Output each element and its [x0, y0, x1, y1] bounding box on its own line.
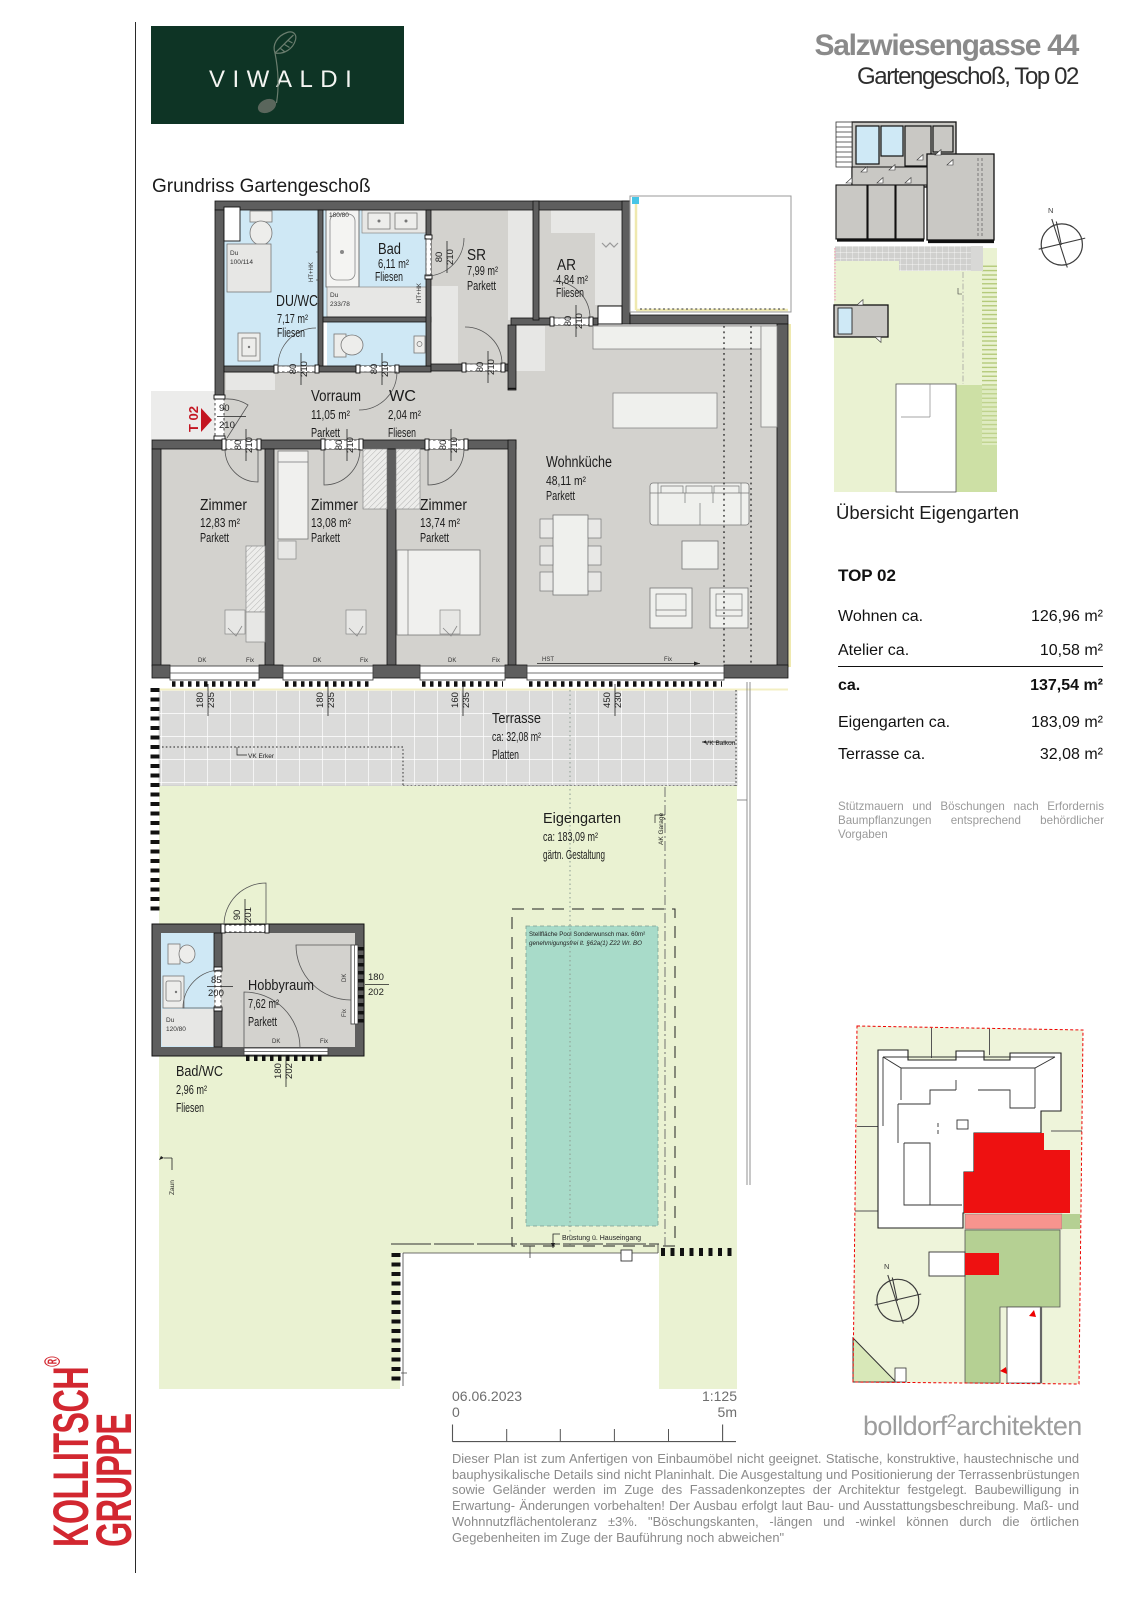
svg-text:4,84 m²: 4,84 m² [556, 273, 588, 287]
svg-text:DK: DK [448, 658, 456, 664]
svg-text:80: 80 [475, 362, 486, 373]
svg-text:Hobbyraum: Hobbyraum [248, 977, 314, 994]
svg-text:Bad: Bad [378, 241, 401, 258]
svg-text:VK Balkon: VK Balkon [705, 740, 736, 747]
svg-text:Zimmer: Zimmer [200, 497, 247, 514]
svg-text:Fix: Fix [342, 1009, 348, 1017]
svg-text:SR: SR [467, 247, 486, 264]
svg-text:AR: AR [557, 257, 576, 274]
svg-text:ca: 183,09 m²: ca: 183,09 m² [543, 830, 598, 844]
svg-text:Zimmer: Zimmer [420, 497, 467, 514]
svg-text:N: N [884, 1262, 889, 1271]
svg-text:N: N [1048, 206, 1053, 215]
svg-text:7,62 m²: 7,62 m² [248, 997, 279, 1011]
svg-text:180: 180 [195, 692, 206, 708]
svg-text:7,17 m²: 7,17 m² [277, 312, 308, 326]
svg-text:Fliesen: Fliesen [277, 326, 305, 340]
svg-text:2,96 m²: 2,96 m² [176, 1083, 207, 1097]
svg-text:13,08 m²: 13,08 m² [311, 516, 351, 530]
svg-text:120/80: 120/80 [166, 1026, 186, 1033]
svg-text:13,74 m²: 13,74 m² [420, 516, 460, 530]
svg-text:90: 90 [219, 403, 230, 414]
svg-text:12,83 m²: 12,83 m² [200, 516, 240, 530]
svg-text:Fix: Fix [360, 658, 368, 664]
svg-text:7,99 m²: 7,99 m² [467, 264, 498, 278]
svg-text:80: 80 [563, 316, 574, 327]
svg-text:80: 80 [334, 440, 345, 451]
svg-text:Eigengarten: Eigengarten [543, 810, 621, 827]
svg-text:Stellfläche Pool Sonderwunsch: Stellfläche Pool Sonderwunsch max. 60m² [529, 931, 645, 938]
svg-text:Wohnküche: Wohnküche [546, 454, 612, 471]
svg-text:Fix: Fix [320, 1039, 328, 1045]
svg-text:160: 160 [450, 692, 461, 708]
svg-text:HT+HK: HT+HK [417, 283, 423, 303]
svg-text:Parkett: Parkett [420, 531, 449, 545]
svg-text:ca: 32,08 m²: ca: 32,08 m² [492, 730, 541, 744]
svg-text:Vorraum: Vorraum [311, 388, 361, 405]
svg-text:80: 80 [369, 364, 380, 375]
svg-text:Fix: Fix [664, 657, 672, 663]
svg-text:233/78: 233/78 [330, 301, 350, 308]
svg-text:80: 80 [434, 252, 445, 263]
svg-text:Parkett: Parkett [311, 426, 340, 440]
svg-text:HT+HK: HT+HK [309, 262, 315, 282]
svg-text:Zimmer: Zimmer [311, 497, 358, 514]
svg-text:11,05 m²: 11,05 m² [311, 408, 350, 422]
svg-text:202: 202 [368, 987, 384, 998]
svg-text:Du: Du [166, 1017, 175, 1024]
svg-text:Fliesen: Fliesen [388, 426, 416, 440]
svg-text:VK Erker: VK Erker [248, 753, 275, 760]
svg-text:Fix: Fix [492, 658, 500, 664]
svg-text:200: 200 [208, 988, 224, 999]
svg-text:gärtn. Gestaltung: gärtn. Gestaltung [543, 848, 605, 862]
svg-text:DU/WC: DU/WC [276, 293, 318, 310]
svg-text:100/114: 100/114 [230, 259, 253, 266]
svg-text:Fliesen: Fliesen [176, 1101, 204, 1115]
svg-text:180: 180 [273, 1063, 284, 1079]
svg-text:DK: DK [198, 658, 206, 664]
svg-text:DK: DK [342, 974, 348, 982]
svg-text:Du: Du [330, 292, 339, 299]
svg-text:450: 450 [602, 692, 613, 708]
svg-text:DK: DK [272, 1039, 280, 1045]
svg-text:Parkett: Parkett [248, 1015, 277, 1029]
svg-text:48,11 m²: 48,11 m² [546, 474, 586, 488]
svg-text:AK Garage: AK Garage [658, 812, 665, 845]
svg-text:genehmigungsfrei lt. §62a(1) Z: genehmigungsfrei lt. §62a(1) Z22 Wr. BO [529, 940, 642, 947]
svg-text:Parkett: Parkett [311, 531, 340, 545]
svg-text:6,11 m²: 6,11 m² [378, 257, 409, 271]
svg-text:Parkett: Parkett [200, 531, 229, 545]
svg-text:85: 85 [211, 975, 222, 986]
svg-text:Parkett: Parkett [467, 279, 496, 293]
svg-text:80: 80 [288, 364, 299, 375]
svg-text:80: 80 [438, 440, 449, 451]
svg-text:2,04 m²: 2,04 m² [388, 408, 421, 422]
svg-text:Fix: Fix [246, 658, 254, 664]
svg-text:210: 210 [219, 420, 235, 431]
svg-text:180/80: 180/80 [329, 212, 349, 219]
svg-text:WC: WC [389, 388, 416, 405]
svg-text:Fliesen: Fliesen [556, 286, 584, 300]
svg-text:HST: HST [542, 657, 554, 663]
svg-text:Terrasse: Terrasse [492, 710, 541, 727]
svg-text:80: 80 [233, 440, 244, 451]
svg-text:Platten: Platten [492, 748, 519, 762]
svg-text:180: 180 [368, 972, 384, 983]
svg-text:T 02: T 02 [186, 406, 201, 432]
svg-text:Zaun: Zaun [169, 1180, 176, 1195]
svg-text:DK: DK [313, 658, 321, 664]
svg-text:Parkett: Parkett [546, 489, 575, 503]
svg-text:Du: Du [230, 250, 239, 257]
svg-text:Bad/WC: Bad/WC [176, 1063, 223, 1080]
svg-text:Brüstung ü. Hauseingang: Brüstung ü. Hauseingang [562, 1235, 641, 1242]
svg-text:180: 180 [315, 692, 326, 708]
svg-text:Fliesen: Fliesen [375, 270, 403, 284]
svg-text:90: 90 [232, 910, 243, 921]
